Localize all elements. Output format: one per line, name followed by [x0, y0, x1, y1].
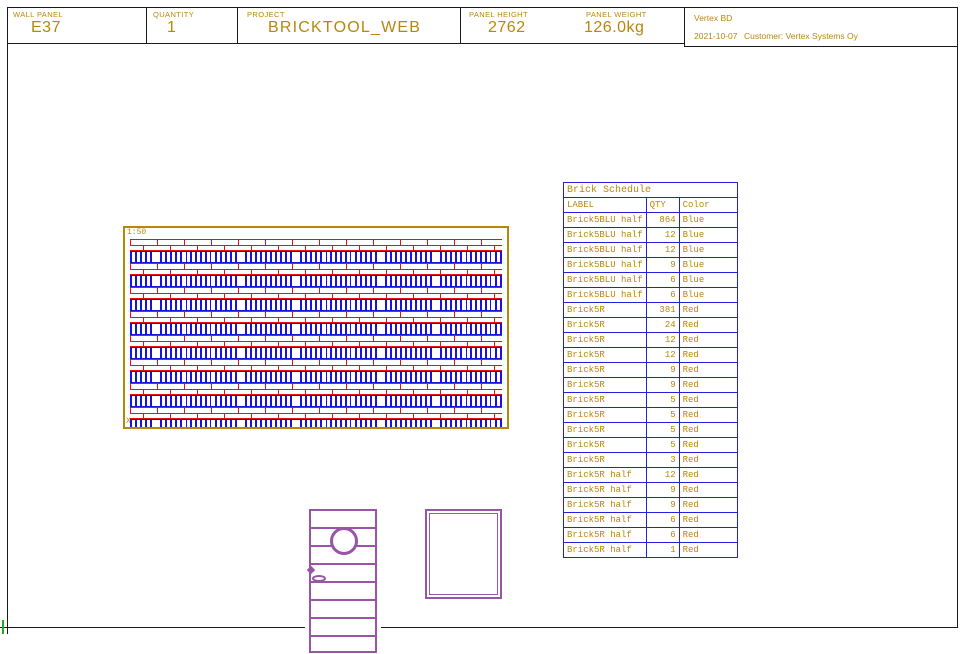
brick-label: Brick5BLU half [564, 228, 647, 243]
brick-schedule-table: Brick Schedule LABEL QTY Color Brick5BLU… [563, 182, 738, 558]
schedule-row: Brick5R half 6 Red [564, 528, 738, 543]
schedule-row: Brick5R 5 Red [564, 423, 738, 438]
brick-label: Brick5R [564, 423, 647, 438]
brick-label: Brick5R [564, 303, 647, 318]
brick-qty: 6 [646, 273, 679, 288]
brick-qty: 6 [646, 513, 679, 528]
window [425, 509, 502, 599]
project-label: PROJECT [247, 10, 285, 19]
scale-label: 1:50 [127, 228, 146, 237]
schedule-row: Brick5BLU half 6 Blue [564, 288, 738, 303]
schedule-row: Brick5BLU half 864 Blue [564, 213, 738, 228]
door-opening [305, 508, 381, 654]
schedule-title-row: Brick Schedule [564, 183, 738, 198]
drawing-date: 2021-10-07 [694, 31, 737, 41]
red-brick-row [130, 389, 502, 394]
schedule-row: Brick5BLU half 6 Blue [564, 273, 738, 288]
brick-qty: 12 [646, 228, 679, 243]
panel-height-value: 2762 [488, 19, 526, 37]
red-brick-course [130, 239, 502, 251]
schedule-row: Brick5R 5 Red [564, 393, 738, 408]
brick-color: Red [679, 453, 737, 468]
window-opening [421, 506, 506, 603]
brick-color: Blue [679, 228, 737, 243]
schedule-row: Brick5R 12 Red [564, 333, 738, 348]
red-brick-course [130, 311, 502, 323]
blue-halfbrick-course [130, 275, 502, 287]
brick-qty: 6 [646, 528, 679, 543]
brick-color: Red [679, 408, 737, 423]
blue-halfbrick-course [130, 347, 502, 359]
brick-label: Brick5R [564, 318, 647, 333]
panel-weight-label: PANEL WEIGHT [586, 10, 647, 19]
sheet-border-bottom [0, 627, 958, 628]
brick-label: Brick5R half [564, 528, 647, 543]
brick-label: Brick5R half [564, 513, 647, 528]
brick-color: Red [679, 303, 737, 318]
blue-halfbrick-course [130, 395, 502, 407]
red-brick-row [130, 245, 502, 250]
brick-color: Blue [679, 243, 737, 258]
brick-color: Red [679, 363, 737, 378]
brick-label: Brick5R [564, 453, 647, 468]
red-brick-course [130, 287, 502, 299]
brick-qty: 12 [646, 333, 679, 348]
brick-qty: 9 [646, 483, 679, 498]
brick-color: Red [679, 483, 737, 498]
brick-color: Blue [679, 288, 737, 303]
blue-halfbrick-course [130, 299, 502, 311]
red-brick-row [130, 317, 502, 322]
red-brick-course [130, 263, 502, 275]
brick-qty: 3 [646, 453, 679, 468]
brick-qty: 9 [646, 378, 679, 393]
blue-halfbrick-course [130, 323, 502, 335]
brick-qty: 24 [646, 318, 679, 333]
schedule-title: Brick Schedule [564, 183, 738, 198]
brick-color: Red [679, 438, 737, 453]
wall-panel-label: WALL PANEL [13, 10, 63, 19]
red-brick-course [130, 407, 502, 419]
col-header-qty: QTY [646, 198, 679, 213]
schedule-row: Brick5R half 12 Red [564, 468, 738, 483]
brick-color: Red [679, 348, 737, 363]
brick-color: Red [679, 513, 737, 528]
schedule-row: Brick5R half 9 Red [564, 483, 738, 498]
red-brick-course [130, 359, 502, 371]
brick-qty: 864 [646, 213, 679, 228]
brick-color: Red [679, 333, 737, 348]
brick-qty: 5 [646, 423, 679, 438]
blue-halfbrick-course [130, 371, 502, 383]
brick-color: Red [679, 423, 737, 438]
brick-wall [130, 239, 502, 427]
door-handle-icon [307, 566, 315, 574]
brick-qty: 5 [646, 408, 679, 423]
panel-drawing-frame: 1:50 XY [123, 226, 509, 429]
brick-color: Blue [679, 213, 737, 228]
brick-qty: 6 [646, 288, 679, 303]
header-divider-3 [460, 7, 461, 43]
header-divider-1 [146, 7, 147, 43]
brick-color: Red [679, 468, 737, 483]
header-divider-2 [237, 7, 238, 43]
schedule-row: Brick5BLU half 12 Blue [564, 243, 738, 258]
brick-label: Brick5R [564, 393, 647, 408]
brick-label: Brick5R [564, 378, 647, 393]
panel-height-label: PANEL HEIGHT [469, 10, 528, 19]
schedule-row: Brick5R 9 Red [564, 363, 738, 378]
brick-label: Brick5R [564, 363, 647, 378]
brick-color: Red [679, 318, 737, 333]
schedule-row: Brick5R 9 Red [564, 378, 738, 393]
red-brick-row [130, 293, 502, 298]
red-brick-course [130, 383, 502, 395]
window-inner-frame [429, 513, 498, 595]
brick-color: Red [679, 498, 737, 513]
brick-qty: 12 [646, 468, 679, 483]
schedule-row: Brick5R half 9 Red [564, 498, 738, 513]
brick-qty: 9 [646, 498, 679, 513]
red-brick-row [130, 413, 502, 418]
door-lock-icon [312, 575, 326, 582]
brick-color: Red [679, 393, 737, 408]
brick-label: Brick5BLU half [564, 213, 647, 228]
red-brick-row [130, 341, 502, 346]
door [309, 509, 377, 653]
brick-label: Brick5BLU half [564, 243, 647, 258]
schedule-row: Brick5R half 6 Red [564, 513, 738, 528]
brick-label: Brick5R [564, 408, 647, 423]
blue-halfbrick-course [130, 251, 502, 263]
brick-label: Brick5R half [564, 543, 647, 558]
door-window-circle [330, 527, 358, 555]
brick-label: Brick5R half [564, 498, 647, 513]
brick-qty: 9 [646, 258, 679, 273]
header-bottom-line [7, 43, 685, 44]
brick-label: Brick5R half [564, 483, 647, 498]
brick-color: Red [679, 378, 737, 393]
brick-color: Blue [679, 258, 737, 273]
brick-qty: 1 [646, 543, 679, 558]
door-panel-line [311, 599, 375, 601]
brick-qty: 381 [646, 303, 679, 318]
brick-qty: 9 [646, 363, 679, 378]
quantity-label: QUANTITY [153, 10, 194, 19]
schedule-row: Brick5R 3 Red [564, 453, 738, 468]
brick-schedule-body: Brick Schedule LABEL QTY Color Brick5BLU… [564, 183, 738, 558]
schedule-header-row: LABEL QTY Color [564, 198, 738, 213]
blue-halfbrick-course [130, 419, 502, 427]
brick-qty: 12 [646, 243, 679, 258]
brick-color: Blue [679, 273, 737, 288]
brick-label: Brick5BLU half [564, 273, 647, 288]
sheet-border-right [957, 7, 958, 628]
brick-label: Brick5R [564, 348, 647, 363]
panel-weight-value: 126.0kg [584, 19, 644, 37]
schedule-row: Brick5BLU half 12 Blue [564, 228, 738, 243]
brick-label: Brick5BLU half [564, 258, 647, 273]
schedule-row: Brick5BLU half 9 Blue [564, 258, 738, 273]
red-brick-row [130, 365, 502, 370]
project-value: BRICKTOOL_WEB [268, 19, 421, 37]
red-brick-course [130, 335, 502, 347]
wall-panel-value: E37 [31, 19, 61, 37]
schedule-row: Brick5R 12 Red [564, 348, 738, 363]
schedule-row: Brick5R half 1 Red [564, 543, 738, 558]
schedule-row: Brick5R 5 Red [564, 408, 738, 423]
origin-marker [2, 620, 4, 634]
brick-label: Brick5BLU half [564, 288, 647, 303]
door-panel-line [311, 617, 375, 619]
schedule-row: Brick5R 5 Red [564, 438, 738, 453]
schedule-row: Brick5R 24 Red [564, 318, 738, 333]
schedule-row: Brick5R 381 Red [564, 303, 738, 318]
brick-label: Brick5R [564, 438, 647, 453]
brick-qty: 5 [646, 438, 679, 453]
door-panel-line [311, 563, 375, 565]
col-header-color: Color [679, 198, 737, 213]
brick-qty: 5 [646, 393, 679, 408]
door-panel-line [311, 635, 375, 637]
sheet-border-left [7, 7, 8, 634]
col-header-label: LABEL [564, 198, 647, 213]
brick-label: Brick5R half [564, 468, 647, 483]
brick-color: Red [679, 528, 737, 543]
quantity-value: 1 [167, 19, 176, 37]
customer-name: Customer: Vertex Systems Oy [744, 31, 858, 41]
red-brick-row [130, 269, 502, 274]
brick-color: Red [679, 543, 737, 558]
brick-qty: 12 [646, 348, 679, 363]
brick-label: Brick5R [564, 333, 647, 348]
app-name: Vertex BD [694, 13, 732, 23]
